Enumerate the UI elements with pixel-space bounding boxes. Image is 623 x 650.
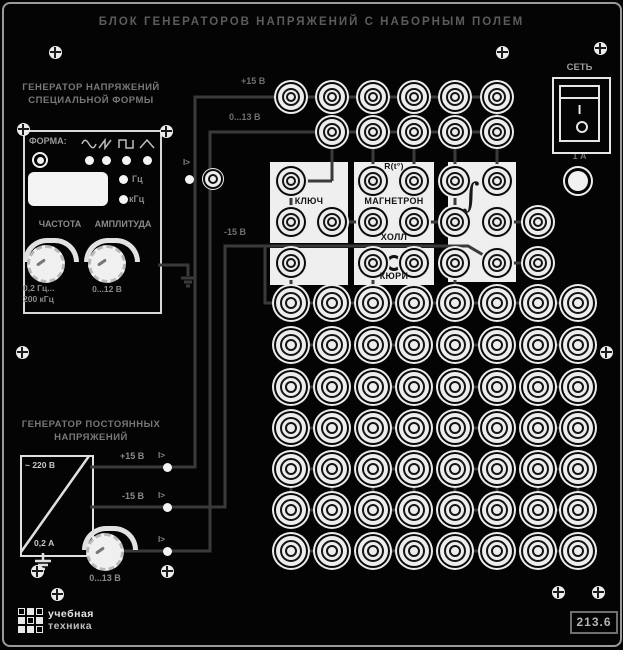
dc-plus15-led: [163, 463, 172, 472]
socket-block-16[interactable]: [442, 250, 468, 276]
socket-r6-c6[interactable]: [482, 495, 512, 525]
socket-r4-c1[interactable]: [276, 413, 306, 443]
socket-r3-c2[interactable]: [317, 372, 347, 402]
form-overload-led: [185, 175, 194, 184]
socket-r6-c2[interactable]: [317, 495, 347, 525]
triangle-wave-icon: [139, 138, 155, 150]
socket-r2-c4[interactable]: [399, 330, 429, 360]
socket-r1-c4[interactable]: [399, 288, 429, 318]
socket-block-7[interactable]: [319, 209, 345, 235]
socket-bus15-c4[interactable]: [401, 84, 427, 110]
socket-block-5[interactable]: [484, 168, 510, 194]
integrator-symbol: ∫: [462, 176, 480, 216]
socket-block-1[interactable]: [278, 168, 304, 194]
socket-block-13[interactable]: [278, 250, 304, 276]
sawtooth-wave-icon: [98, 138, 114, 150]
socket-r2-c5[interactable]: [440, 330, 470, 360]
frequency-knob[interactable]: [27, 245, 65, 283]
socket-r2-c7[interactable]: [523, 330, 553, 360]
rocker-divider: [561, 97, 598, 99]
form-output-socket[interactable]: [205, 171, 221, 187]
dc-minus15-led: [163, 503, 172, 512]
socket-r4-c3[interactable]: [358, 413, 388, 443]
socket-r5-c8[interactable]: [563, 454, 593, 484]
socket-busadj-c6[interactable]: [484, 119, 510, 145]
socket-busadj-c2[interactable]: [319, 119, 345, 145]
socket-busadj-c5[interactable]: [442, 119, 468, 145]
socket-r7-c8[interactable]: [563, 536, 593, 566]
waveform-led-triangle: [143, 156, 152, 165]
socket-r3-c1[interactable]: [276, 372, 306, 402]
socket-r2-c6[interactable]: [482, 330, 512, 360]
socket-busadj-c4[interactable]: [401, 119, 427, 145]
socket-r5-c1[interactable]: [276, 454, 306, 484]
socket-r7-c3[interactable]: [358, 536, 388, 566]
socket-r6-c1[interactable]: [276, 495, 306, 525]
fuse-holder[interactable]: [563, 166, 593, 196]
socket-bus15-c5[interactable]: [442, 84, 468, 110]
waveform-led-sine: [85, 156, 94, 165]
socket-r2-c2[interactable]: [317, 330, 347, 360]
brand-logo-icon: [18, 608, 44, 634]
socket-r4-c7[interactable]: [523, 413, 553, 443]
socket-r2-c3[interactable]: [358, 330, 388, 360]
socket-r1-c7[interactable]: [523, 288, 553, 318]
block-hall-label: ХОЛЛ: [354, 232, 434, 242]
dc-adjust-led: [163, 547, 172, 556]
socket-r7-c2[interactable]: [317, 536, 347, 566]
socket-r3-c3[interactable]: [358, 372, 388, 402]
dc-adjust-knob[interactable]: [86, 533, 124, 571]
block-curie-label: КЮРИ: [354, 271, 434, 281]
socket-r4-c4[interactable]: [399, 413, 429, 443]
socket-r6-c4[interactable]: [399, 495, 429, 525]
socket-r3-c4[interactable]: [399, 372, 429, 402]
block-key-label: КЛЮЧ: [270, 196, 348, 206]
socket-r6-c8[interactable]: [563, 495, 593, 525]
screw-icon: [161, 565, 174, 578]
socket-busadj-c3[interactable]: [360, 119, 386, 145]
socket-r4-c2[interactable]: [317, 413, 347, 443]
socket-block-2[interactable]: [360, 168, 386, 194]
screw-icon: [592, 586, 605, 599]
waveform-select-button[interactable]: [32, 152, 48, 168]
screw-icon: [51, 588, 64, 601]
square-wave-icon: [118, 138, 134, 150]
socket-r7-c7[interactable]: [523, 536, 553, 566]
socket-r5-c7[interactable]: [523, 454, 553, 484]
socket-r7-c6[interactable]: [482, 536, 512, 566]
socket-r7-c5[interactable]: [440, 536, 470, 566]
power-switch[interactable]: I: [552, 77, 611, 154]
socket-r6-c5[interactable]: [440, 495, 470, 525]
brand-name-2: техника: [48, 620, 92, 632]
socket-r4-c5[interactable]: [440, 413, 470, 443]
socket-r1-c2[interactable]: [317, 288, 347, 318]
socket-r1-c3[interactable]: [358, 288, 388, 318]
screw-icon: [16, 346, 29, 359]
khz-led: [119, 195, 128, 204]
socket-r3-c5[interactable]: [440, 372, 470, 402]
socket-r6-c7[interactable]: [523, 495, 553, 525]
waveform-led-sawtooth: [102, 156, 111, 165]
socket-bus15-c1[interactable]: [278, 84, 304, 110]
socket-r3-c7[interactable]: [523, 372, 553, 402]
power-switch-rocker[interactable]: I: [559, 85, 600, 142]
hz-led: [119, 175, 128, 184]
socket-r3-c8[interactable]: [563, 372, 593, 402]
socket-r5-c4[interactable]: [399, 454, 429, 484]
waveform-led-square: [122, 156, 131, 165]
socket-r2-c1[interactable]: [276, 330, 306, 360]
socket-r1-c6[interactable]: [482, 288, 512, 318]
screw-icon: [496, 46, 509, 59]
amplitude-knob[interactable]: [88, 245, 126, 283]
block-magnetron-label: МАГНЕТРОН: [354, 196, 434, 206]
socket-r4-c6[interactable]: [482, 413, 512, 443]
socket-block-6[interactable]: [278, 209, 304, 235]
socket-block-12[interactable]: [525, 209, 551, 235]
socket-r1-c8[interactable]: [563, 288, 593, 318]
socket-r5-c2[interactable]: [317, 454, 347, 484]
socket-bus15-c2[interactable]: [319, 84, 345, 110]
socket-block-17[interactable]: [484, 250, 510, 276]
screw-icon: [17, 123, 30, 136]
transformer-diagonal-and-ground: [21, 456, 89, 569]
socket-r1-c5[interactable]: [440, 288, 470, 318]
socket-r3-c6[interactable]: [482, 372, 512, 402]
socket-r6-c3[interactable]: [358, 495, 388, 525]
screw-icon: [552, 586, 565, 599]
socket-bus15-c3[interactable]: [360, 84, 386, 110]
front-panel: БЛОК ГЕНЕРАТОРОВ НАПРЯЖЕНИЙ С НАБОРНЫМ П…: [0, 0, 623, 650]
frequency-display: [28, 172, 108, 206]
socket-r4-c8[interactable]: [563, 413, 593, 443]
socket-r5-c5[interactable]: [440, 454, 470, 484]
screw-icon: [600, 346, 613, 359]
curie-indicator-socket[interactable]: [389, 258, 399, 268]
socket-r5-c6[interactable]: [482, 454, 512, 484]
screw-icon: [31, 565, 44, 578]
screw-icon: [594, 42, 607, 55]
socket-block-18[interactable]: [525, 250, 551, 276]
power-on-symbol: I: [561, 102, 598, 117]
power-off-symbol: [576, 121, 588, 133]
screw-icon: [160, 125, 173, 138]
socket-r5-c3[interactable]: [358, 454, 388, 484]
socket-r1-c1[interactable]: [276, 288, 306, 318]
model-number-badge: 213.6: [570, 611, 618, 634]
screw-icon: [49, 46, 62, 59]
socket-r7-c1[interactable]: [276, 536, 306, 566]
socket-r2-c8[interactable]: [563, 330, 593, 360]
sine-wave-icon: [81, 138, 97, 150]
block-thermistor-label: R(t°): [354, 161, 434, 171]
brand-name-1: учебная: [48, 608, 94, 620]
socket-r7-c4[interactable]: [399, 536, 429, 566]
socket-block-11[interactable]: [484, 209, 510, 235]
socket-bus15-c6[interactable]: [484, 84, 510, 110]
socket-block-3[interactable]: [401, 168, 427, 194]
